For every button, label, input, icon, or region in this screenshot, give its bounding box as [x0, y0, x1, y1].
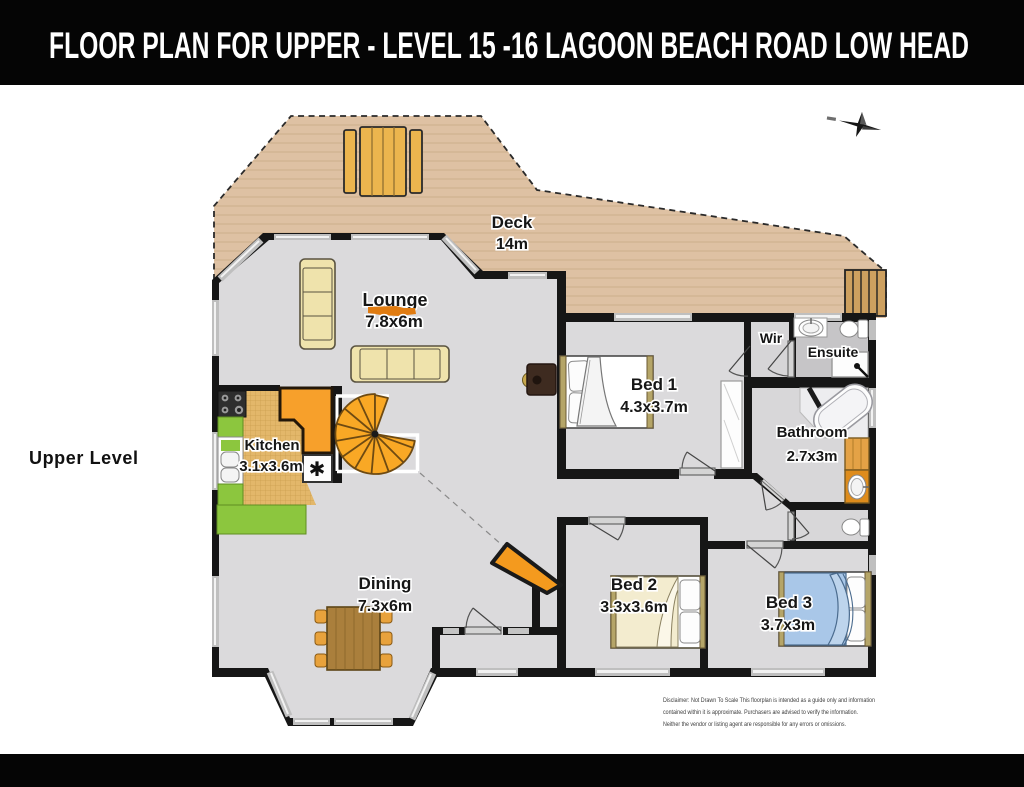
svg-text:✱: ✱: [309, 459, 326, 481]
svg-text:Neither the vendor or listing: Neither the vendor or listing agent are …: [663, 721, 846, 728]
svg-text:7.3x6m: 7.3x6m: [358, 598, 412, 615]
svg-text:contained within it is approxi: contained within it is approximate. Purc…: [663, 709, 858, 716]
svg-text:Bed 3: Bed 3: [766, 593, 812, 612]
svg-text:Ensuite: Ensuite: [808, 344, 859, 360]
svg-text:Deck: Deck: [492, 213, 533, 232]
svg-text:Bed 2: Bed 2: [611, 575, 657, 594]
svg-text:Dining: Dining: [359, 574, 412, 593]
svg-text:Wir: Wir: [760, 330, 783, 346]
svg-text:Kitchen: Kitchen: [244, 437, 299, 454]
svg-text:3.1x3.6m: 3.1x3.6m: [239, 458, 302, 475]
svg-text:Upper Level: Upper Level: [29, 448, 138, 468]
svg-text:Disclaimer: Not Drawn To Scale: Disclaimer: Not Drawn To Scale This floo…: [663, 697, 875, 704]
svg-text:Bathroom: Bathroom: [777, 424, 848, 441]
svg-text:4.3x3.7m: 4.3x3.7m: [620, 399, 688, 416]
svg-text:14m: 14m: [496, 236, 528, 253]
svg-text:Bed 1: Bed 1: [631, 375, 677, 394]
svg-text:3.7x3m: 3.7x3m: [761, 617, 815, 634]
svg-text:FLOOR PLAN FOR UPPER - LEVEL 1: FLOOR PLAN FOR UPPER - LEVEL 15 -16 LAGO…: [49, 25, 969, 66]
svg-text:7.8x6m: 7.8x6m: [365, 312, 423, 331]
svg-text:3.3x3.6m: 3.3x3.6m: [600, 599, 668, 616]
svg-text:2.7x3m: 2.7x3m: [787, 448, 838, 465]
